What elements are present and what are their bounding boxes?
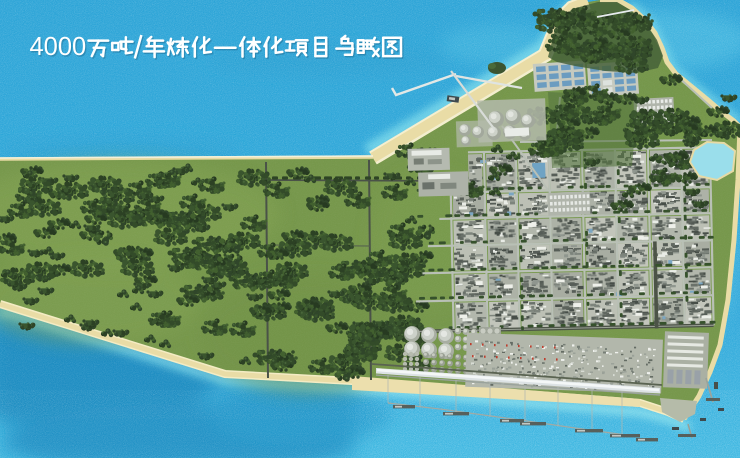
svg-text:4000: 4000 <box>30 33 87 61</box>
